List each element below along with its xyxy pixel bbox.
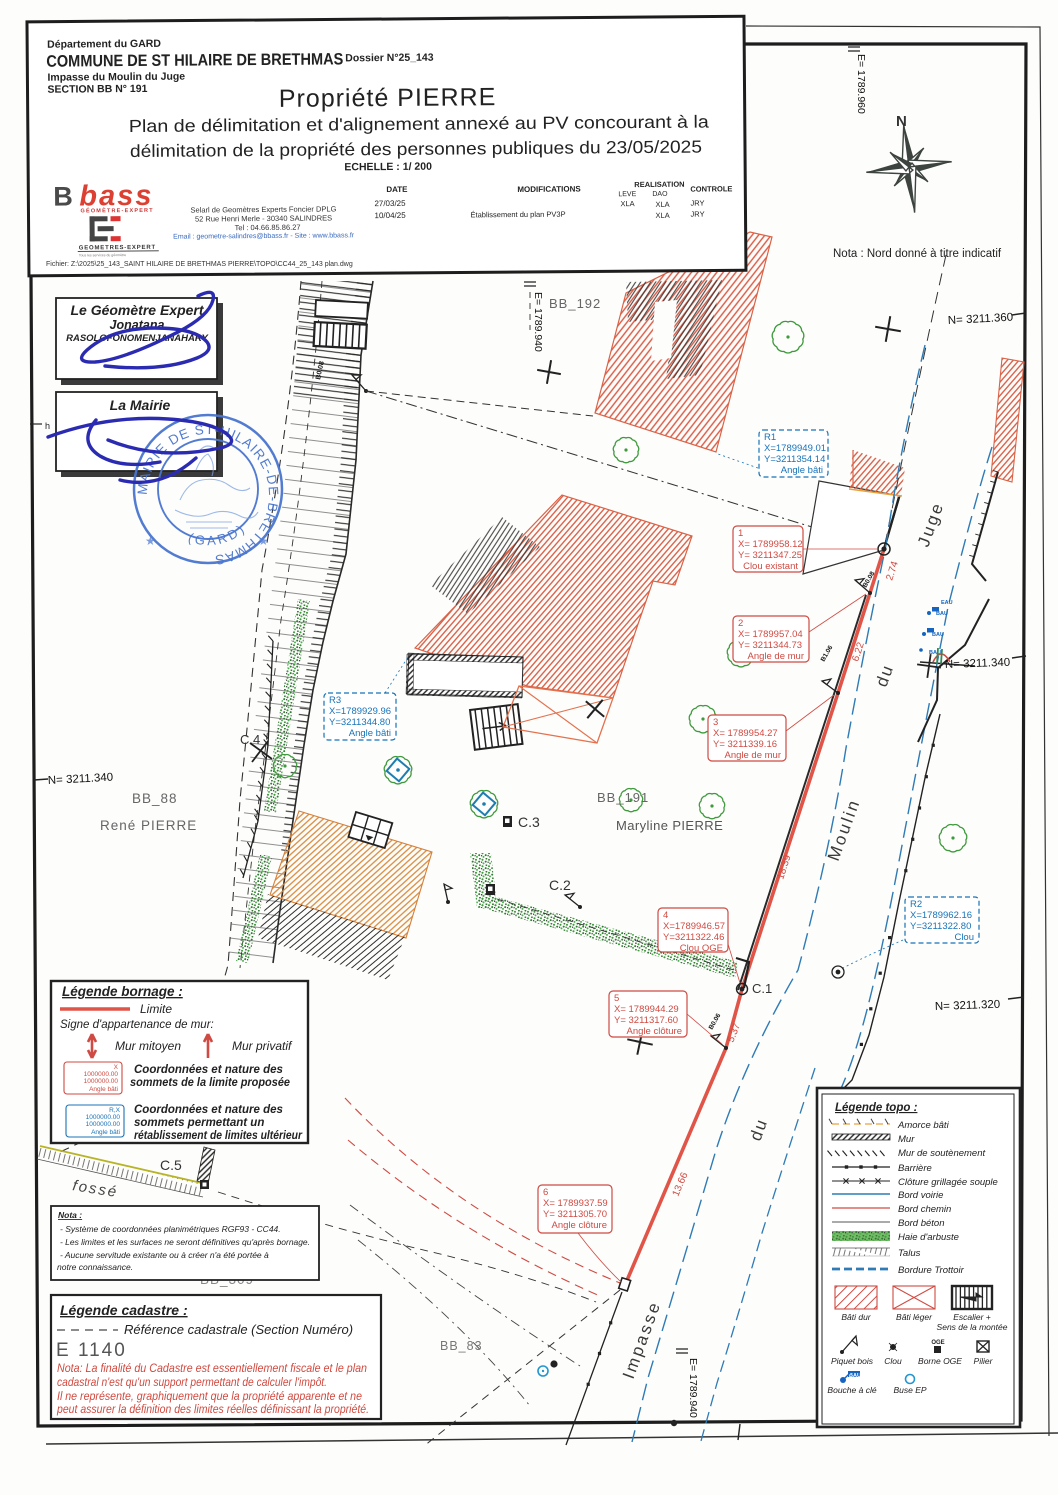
svg-text:Bouche à clé: Bouche à clé — [827, 1385, 876, 1395]
svg-text:C.4: C.4 — [240, 732, 260, 747]
svg-text:Angle de mur: Angle de mur — [747, 651, 804, 662]
svg-text:cadastral n'est qu'un support: cadastral n'est qu'un support permettant… — [57, 1375, 327, 1389]
svg-text:JRY: JRY — [690, 210, 704, 219]
svg-text:10/04/25: 10/04/25 — [374, 211, 406, 220]
svg-text:N= 3211.340: N= 3211.340 — [945, 657, 1011, 671]
svg-text:Email : geometre-salindres@bba: Email : geometre-salindres@bbass.fr - Si… — [173, 232, 355, 240]
svg-text:Bord chemin: Bord chemin — [898, 1204, 951, 1215]
svg-text:DAO: DAO — [652, 191, 668, 198]
svg-text:1000000.00: 1000000.00 — [84, 1071, 119, 1078]
svg-text:Y= 3211344.73: Y= 3211344.73 — [738, 640, 802, 651]
svg-text:X=1789929.96: X=1789929.96 — [329, 706, 391, 717]
svg-text:5: 5 — [614, 993, 619, 1004]
svg-text:Bâti léger: Bâti léger — [896, 1312, 933, 1322]
svg-text:C.1: C.1 — [752, 981, 772, 996]
svg-text:DATE: DATE — [386, 185, 408, 194]
svg-text:1000000.00: 1000000.00 — [86, 1114, 121, 1121]
svg-text:Tous les services du géomètre: Tous les services du géomètre — [79, 253, 126, 257]
svg-text:Bord béton: Bord béton — [898, 1218, 944, 1229]
svg-text:Nota: La finalité du Cadastre: Nota: La finalité du Cadastre est essent… — [57, 1361, 367, 1375]
svg-text:Angle bâti: Angle bâti — [781, 465, 823, 476]
svg-text:Fichier: Z:\2025\25_143_SAINT: Fichier: Z:\2025\25_143_SAINT HILAIRE DE… — [46, 261, 353, 268]
svg-text:N= 3211.320: N= 3211.320 — [935, 999, 1001, 1013]
svg-text:Piquet bois: Piquet bois — [831, 1356, 874, 1366]
svg-text:BB_88: BB_88 — [132, 791, 178, 806]
svg-text:rétablissement de limites ulté: rétablissement de limites ultérieur — [134, 1128, 303, 1142]
svg-text:Maryline PIERRE: Maryline PIERRE — [616, 818, 723, 833]
svg-text:BB_83: BB_83 — [440, 1339, 483, 1353]
svg-text:Y=3211354.14: Y=3211354.14 — [764, 454, 825, 465]
svg-text:Dossier N°25_143: Dossier N°25_143 — [345, 52, 434, 65]
svg-text:Tel : 04.66.85.86.27: Tel : 04.66.85.86.27 — [235, 223, 301, 233]
svg-text:X= 1789958.12: X= 1789958.12 — [738, 539, 803, 550]
svg-text:Y=3211344.80: Y=3211344.80 — [329, 717, 390, 728]
svg-text:E= 1789.940: E= 1789.940 — [687, 1358, 699, 1418]
svg-text:Angle clôture: Angle clôture — [552, 1220, 607, 1231]
svg-text:BAU: BAU — [849, 1373, 861, 1379]
svg-text:R2: R2 — [910, 899, 922, 910]
svg-text:Haie d'arbuste: Haie d'arbuste — [898, 1232, 959, 1243]
svg-text:E= 1789.940: E= 1789.940 — [532, 292, 544, 352]
svg-text:Y= 3211317.60: Y= 3211317.60 — [614, 1015, 678, 1026]
svg-text:Buse EP: Buse EP — [893, 1385, 926, 1395]
svg-text:Clou: Clou — [954, 932, 974, 943]
svg-text:R,X: R,X — [109, 1107, 121, 1114]
svg-text:CONTROLE: CONTROLE — [690, 184, 732, 193]
svg-text:Légende bornage :: Légende bornage : — [62, 984, 183, 999]
svg-text:3: 3 — [713, 717, 718, 728]
svg-text:Clôture grillagée souple: Clôture grillagée souple — [898, 1177, 998, 1188]
svg-text:Y= 3211347.25: Y= 3211347.25 — [738, 550, 802, 561]
svg-text:Bâti dur: Bâti dur — [841, 1312, 871, 1322]
svg-text:Angle de mur: Angle de mur — [724, 750, 781, 761]
svg-text:X= 1789954.27: X= 1789954.27 — [713, 728, 778, 739]
svg-text:X=1789946.57: X=1789946.57 — [663, 921, 725, 932]
svg-text:Y= 3211339.16: Y= 3211339.16 — [713, 739, 777, 750]
svg-text:2: 2 — [738, 618, 743, 629]
svg-text:Barrière: Barrière — [898, 1163, 932, 1174]
svg-text:sommets de la limite proposée: sommets de la limite proposée — [130, 1075, 290, 1089]
svg-text:BAU: BAU — [932, 632, 944, 638]
svg-text:Légende cadastre :: Légende cadastre : — [60, 1302, 188, 1318]
svg-text:Angle bâti: Angle bâti — [349, 728, 391, 739]
svg-text:★: ★ — [145, 534, 156, 548]
svg-text:Angle clôture: Angle clôture — [627, 1026, 682, 1037]
svg-text:ECHELLE : 1/ 200: ECHELLE : 1/ 200 — [344, 161, 432, 174]
svg-text:Clou existant: Clou existant — [743, 561, 798, 572]
svg-text:Mur de soutènement: Mur de soutènement — [898, 1148, 985, 1159]
svg-text:X= 1789957.04: X= 1789957.04 — [738, 629, 803, 640]
svg-text:SECTION BB N° 191: SECTION BB N° 191 — [47, 83, 147, 96]
svg-text:RASOLOFONOMENJANAHARY: RASOLOFONOMENJANAHARY — [66, 333, 209, 344]
svg-text:h: h — [45, 421, 50, 431]
svg-text:Référence cadastrale (Section: Référence cadastrale (Section Numéro) — [124, 1322, 353, 1337]
svg-text:BB_192: BB_192 — [549, 296, 601, 311]
svg-text:Coordonnées et nature des: Coordonnées et nature des — [134, 1104, 283, 1116]
svg-text:Bordure Trottoir: Bordure Trottoir — [898, 1265, 965, 1276]
svg-text:LEVE: LEVE — [618, 191, 636, 198]
svg-text:BB_191: BB_191 — [597, 790, 649, 805]
svg-text:Limite: Limite — [140, 1002, 172, 1016]
svg-text:Talus: Talus — [898, 1248, 921, 1259]
svg-text:EAU: EAU — [941, 600, 953, 606]
svg-text:X: X — [114, 1064, 119, 1071]
svg-text:Sens de la montée: Sens de la montée — [937, 1322, 1008, 1332]
svg-text:REALISATION: REALISATION — [634, 180, 684, 189]
svg-text:Clou: Clou — [884, 1356, 902, 1366]
svg-text:N: N — [896, 113, 907, 130]
svg-text:BAU: BAU — [936, 611, 948, 617]
svg-text:GEOMETRES-EXPERT: GEOMETRES-EXPERT — [79, 245, 156, 252]
svg-text:C.3: C.3 — [518, 814, 540, 830]
svg-text:X=1789962.16: X=1789962.16 — [910, 910, 972, 921]
svg-text:Mur privatif: Mur privatif — [232, 1039, 293, 1053]
svg-text:R1: R1 — [764, 432, 776, 443]
svg-text:E 1140: E 1140 — [56, 1340, 127, 1361]
svg-text:Légende topo :: Légende topo : — [835, 1102, 918, 1114]
svg-text:OGE: OGE — [931, 1340, 944, 1346]
svg-text:B: B — [53, 181, 73, 211]
svg-text:Y=3211322.46: Y=3211322.46 — [663, 932, 724, 943]
svg-text:Clou OGE: Clou OGE — [680, 943, 723, 954]
svg-text:Angle bâti: Angle bâti — [91, 1129, 120, 1136]
svg-text:Borne OGE: Borne OGE — [918, 1356, 962, 1366]
svg-text:peut assurer la définition des: peut assurer la définition des limites r… — [56, 1402, 369, 1416]
svg-text:Amorce bâti: Amorce bâti — [897, 1120, 950, 1131]
svg-text:- Aucune servitude existante o: - Aucune servitude existante ou à créer … — [60, 1250, 269, 1260]
svg-text:Signe d'appartenance de mur:: Signe d'appartenance de mur: — [60, 1019, 214, 1031]
svg-text:Y=3211322.80: Y=3211322.80 — [910, 921, 971, 932]
svg-text:4: 4 — [663, 910, 668, 921]
svg-text:- Les limites et les surfaces: - Les limites et les surfaces ne seront … — [60, 1237, 310, 1247]
svg-text:X=1789949.01: X=1789949.01 — [764, 443, 826, 454]
svg-text:Nota : Nord donné à titre indi: Nota : Nord donné à titre indicatif — [833, 248, 1002, 260]
svg-text:COMMUNE DE ST HILAIRE DE BRETH: COMMUNE DE ST HILAIRE DE BRETHMAS — [46, 50, 343, 70]
svg-text:Mur: Mur — [898, 1134, 915, 1145]
svg-text:1: 1 — [738, 528, 743, 539]
svg-text:X= 1789944.29: X= 1789944.29 — [614, 1004, 679, 1015]
svg-text:R3: R3 — [329, 695, 341, 706]
svg-text:XLA: XLA — [620, 199, 634, 208]
svg-text:C.5: C.5 — [160, 1157, 182, 1173]
svg-text:Propriété PIERRE: Propriété PIERRE — [279, 83, 497, 113]
svg-text:E= 1789.960: E= 1789.960 — [855, 54, 867, 114]
svg-text:Établissement du plan PV3P: Établissement du plan PV3P — [470, 210, 565, 220]
svg-text:C.2: C.2 — [549, 877, 571, 893]
svg-text:Impasse du Moulin du Juge: Impasse du Moulin du Juge — [47, 71, 185, 84]
svg-text:Angle bâti: Angle bâti — [89, 1086, 118, 1093]
svg-text:★: ★ — [258, 534, 269, 548]
svg-text:Mur mitoyen: Mur mitoyen — [115, 1039, 181, 1053]
svg-text:Il ne représente, graphiquemen: Il ne représente, graphiquement que la p… — [57, 1389, 362, 1403]
svg-text:MODIFICATIONS: MODIFICATIONS — [517, 184, 581, 194]
svg-text:1000000.00: 1000000.00 — [84, 1078, 119, 1085]
svg-text:- Système de coordonnées plani: - Système de coordonnées planimétriques … — [60, 1224, 281, 1234]
svg-text:Escalier +: Escalier + — [953, 1312, 991, 1322]
svg-text:Bord voirie: Bord voirie — [898, 1190, 943, 1201]
svg-text:6: 6 — [543, 1187, 548, 1198]
svg-text:27/03/25: 27/03/25 — [374, 199, 406, 208]
svg-text:Département du GARD: Département du GARD — [47, 38, 161, 51]
svg-text:XLA: XLA — [655, 200, 669, 209]
svg-text:René PIERRE: René PIERRE — [100, 818, 197, 833]
svg-text:1000000.00: 1000000.00 — [86, 1121, 121, 1128]
svg-text:La Mairie: La Mairie — [110, 397, 171, 413]
svg-text:Nota :: Nota : — [58, 1210, 82, 1220]
svg-text:Le Géomètre Expert: Le Géomètre Expert — [70, 302, 204, 318]
svg-text:Y= 3211305.70: Y= 3211305.70 — [543, 1209, 607, 1220]
svg-text:notre connaissance.: notre connaissance. — [57, 1262, 133, 1272]
svg-text:X= 1789937.59: X= 1789937.59 — [543, 1198, 608, 1209]
svg-text:Pilier: Pilier — [974, 1356, 994, 1366]
svg-text:XLA: XLA — [655, 211, 669, 220]
svg-text:JRY: JRY — [690, 199, 704, 208]
